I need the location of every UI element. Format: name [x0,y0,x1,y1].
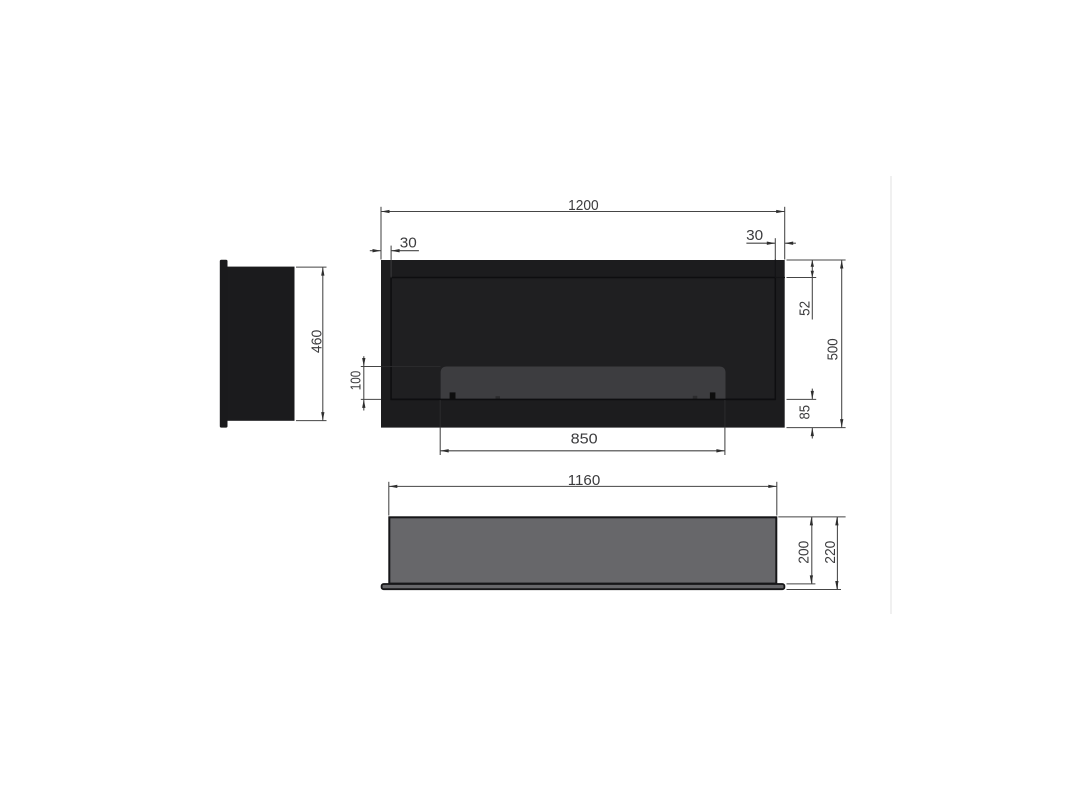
svg-text:85: 85 [796,405,813,420]
svg-text:52: 52 [796,301,813,316]
svg-text:30: 30 [400,234,417,251]
svg-text:500: 500 [824,338,841,360]
svg-text:220: 220 [822,541,839,564]
svg-text:460: 460 [308,330,325,354]
svg-text:1160: 1160 [568,472,601,489]
svg-text:200: 200 [796,541,813,564]
svg-text:30: 30 [746,227,763,244]
svg-text:1200: 1200 [568,197,599,214]
svg-text:100: 100 [347,371,364,391]
svg-text:850: 850 [571,430,598,447]
